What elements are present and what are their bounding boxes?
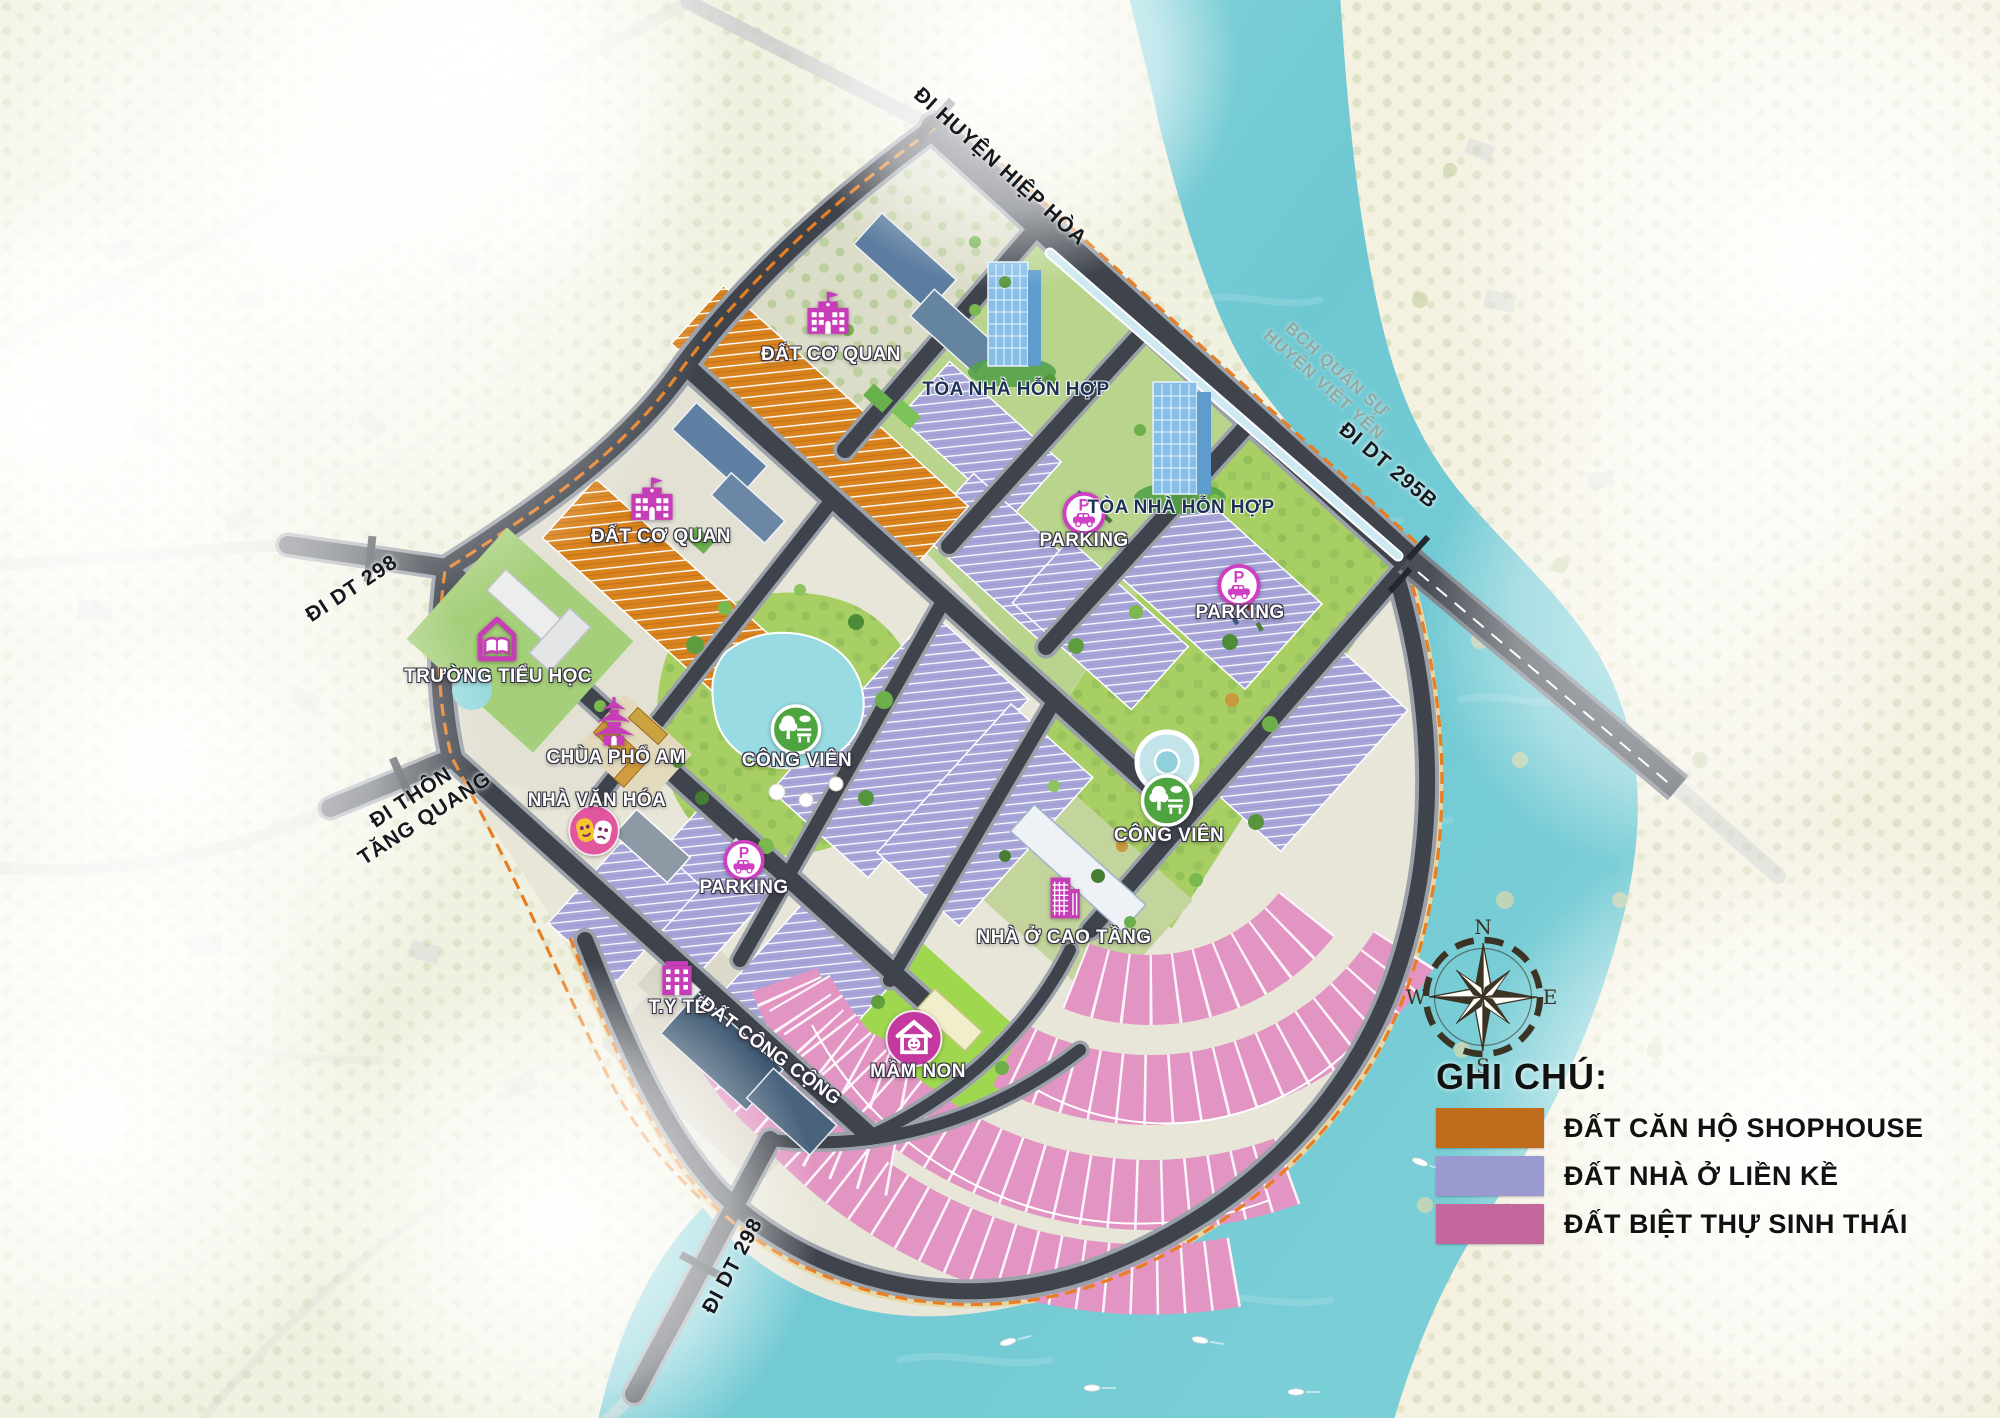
- legend-label-shophouse: ĐẤT CĂN HỘ SHOPHOUSE: [1564, 1113, 1924, 1144]
- government-building-icon: [626, 476, 678, 533]
- high-rise-icon: [1037, 874, 1087, 929]
- primary-school-icon: [470, 612, 524, 671]
- legend-swatch-shophouse: [1436, 1108, 1544, 1148]
- label-chua-pho-am: CHÙA PHỔ AM: [546, 747, 685, 769]
- legend-row-shophouse: ĐẤT CĂN HỘ SHOPHOUSE: [1436, 1108, 1924, 1148]
- legend-swatch-rowhouse: [1436, 1156, 1544, 1196]
- label-toa-nha-hon-hop-1: TÒA NHÀ HỖN HỢP: [922, 379, 1109, 401]
- compass-e: E: [1543, 985, 1558, 1009]
- legend-label-rowhouse: ĐẤT NHÀ Ở LIỀN KỀ: [1564, 1161, 1839, 1192]
- government-building-icon: [802, 290, 854, 347]
- label-parking-1: PARKING: [1039, 530, 1128, 552]
- compass-n: N: [1474, 917, 1492, 939]
- label-nha-o-cao-tang: NHÀ Ở CAO TẦNG: [977, 927, 1152, 949]
- label-toa-nha-hon-hop-2: TÒA NHÀ HỖN HỢP: [1087, 497, 1274, 519]
- label-dat-co-quan-2: ĐẤT CƠ QUAN: [591, 526, 731, 548]
- legend-row-villa: ĐẤT BIỆT THỰ SINH THÁI: [1436, 1204, 1924, 1244]
- legend-label-villa: ĐẤT BIỆT THỰ SINH THÁI: [1564, 1209, 1908, 1240]
- label-parking-2: PARKING: [1195, 602, 1284, 624]
- compass-rose: N E S W: [1403, 917, 1563, 1077]
- theater-masks-icon: [567, 804, 621, 863]
- compass-w: W: [1406, 985, 1427, 1009]
- label-truong-tieu-hoc: TRƯỜNG TIỂU HỌC: [404, 666, 592, 688]
- label-parking-3: PARKING: [699, 877, 788, 899]
- legend-row-rowhouse: ĐẤT NHÀ Ở LIỀN KỀ: [1436, 1156, 1924, 1196]
- label-cong-vien-1: CÔNG VIÊN: [742, 750, 852, 772]
- label-nha-van-hoa: NHÀ VĂN HÓA: [528, 790, 666, 812]
- legend: GHI CHÚ: ĐẤT CĂN HỘ SHOPHOUSE ĐẤT NHÀ Ở …: [1436, 1056, 1924, 1244]
- legend-swatch-villa: [1436, 1204, 1544, 1244]
- masterplan-map: P: [0, 0, 2000, 1418]
- legend-title: GHI CHÚ:: [1436, 1056, 1924, 1098]
- pagoda-icon: [588, 696, 640, 753]
- label-mam-non: MẦM NON: [870, 1061, 966, 1083]
- label-cong-vien-2: CÔNG VIÊN: [1114, 825, 1224, 847]
- label-dat-co-quan-1: ĐẤT CƠ QUAN: [761, 344, 901, 366]
